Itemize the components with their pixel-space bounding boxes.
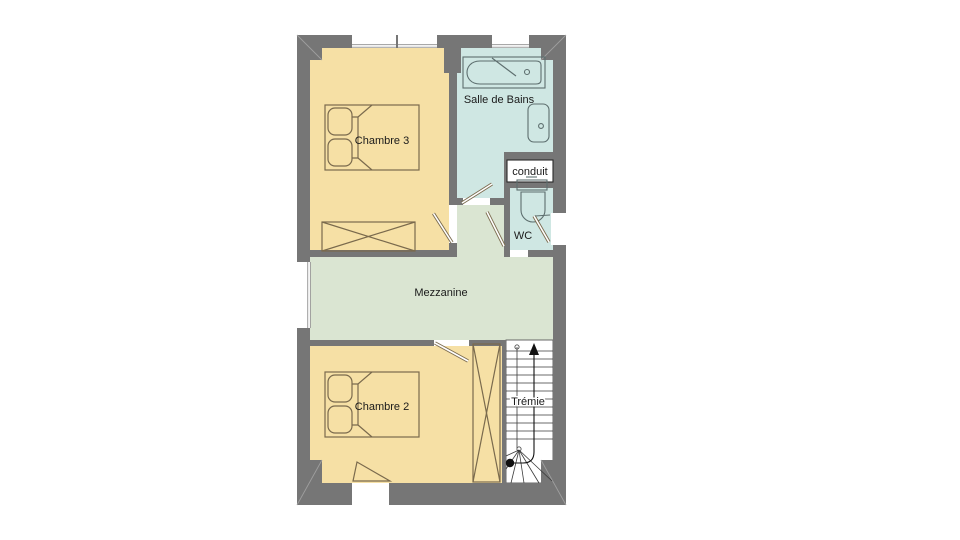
label-wc: WC [514, 230, 532, 242]
wall-tremie-divider [502, 340, 506, 483]
wall-chambre3-right [449, 48, 457, 205]
wall-bath-conduit [504, 152, 553, 160]
door-opening [510, 250, 528, 257]
label-tremie: Trémie [511, 396, 545, 408]
wall-bath-bottom-stub [490, 198, 504, 205]
label-chambre-3: Chambre 3 [355, 135, 409, 147]
room-wc [508, 184, 553, 254]
floor-plan: Chambre 3 Salle de Bains conduit WC Mezz… [0, 0, 960, 540]
label-chambre-2: Chambre 2 [355, 401, 409, 413]
room-chambre3 [310, 48, 449, 257]
window-icon [352, 35, 396, 48]
label-mezzanine: Mezzanine [414, 287, 467, 299]
wall-conduit-wc [504, 182, 553, 188]
floor-plan-page: Chambre 3 Salle de Bains conduit WC Mezz… [0, 0, 960, 540]
label-conduit: conduit [512, 166, 547, 178]
wall-wc-bottom [528, 250, 553, 257]
room-fills [310, 48, 553, 483]
wall-chambre2-top [310, 340, 434, 346]
door-opening [352, 483, 389, 505]
wall-chambre2-top [469, 340, 504, 346]
window-icon [492, 35, 529, 48]
label-salle-de-bains: Salle de Bains [464, 94, 535, 106]
window-icon [398, 35, 437, 48]
stair-start-dot [506, 459, 514, 467]
window-icon [551, 213, 566, 245]
